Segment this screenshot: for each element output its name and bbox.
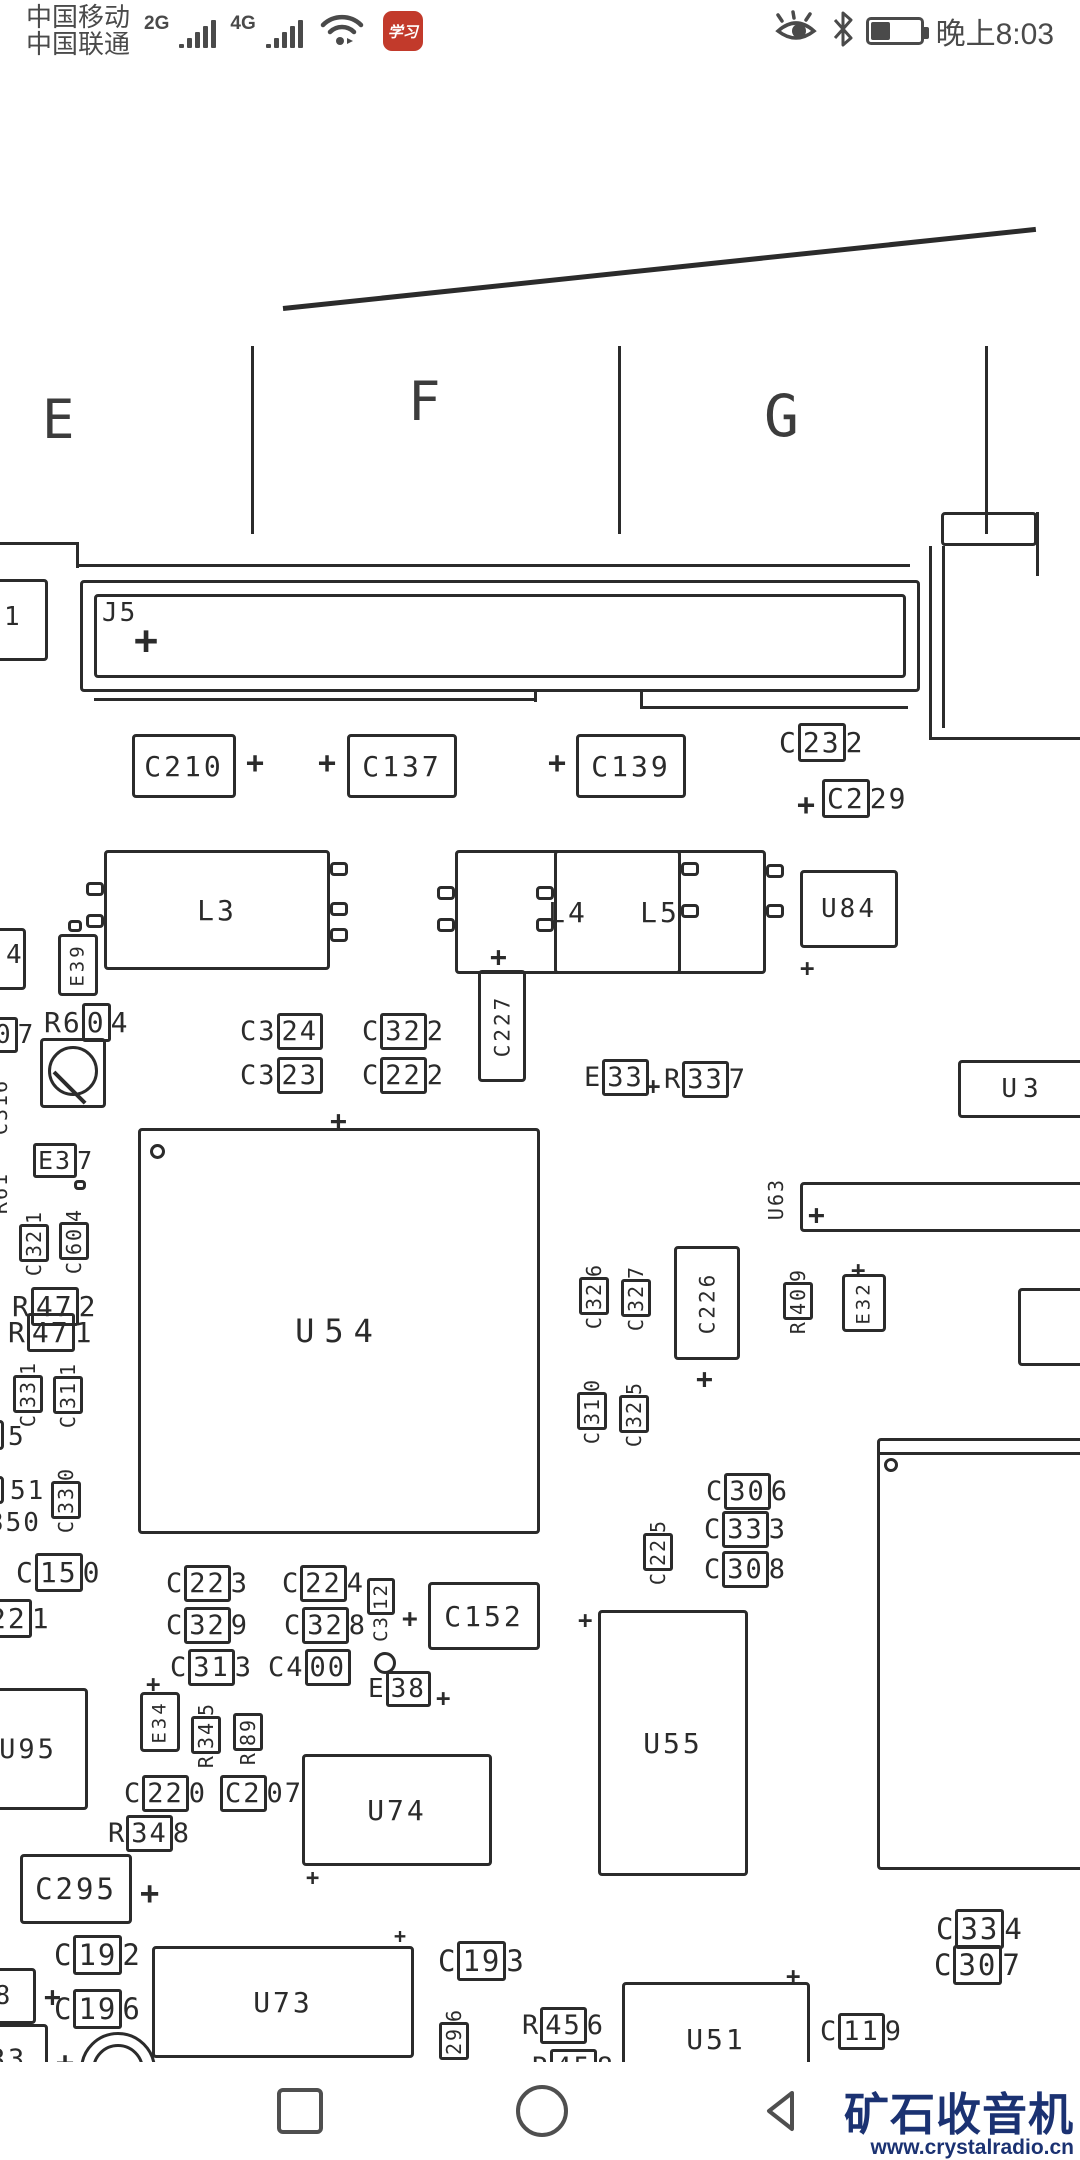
network-type-2: 4G: [230, 13, 255, 35]
inductor-l5: L5: [554, 850, 766, 974]
recent-apps-button[interactable]: [240, 2062, 360, 2160]
plus: +: [436, 1684, 450, 1712]
app-icon-text: 学习: [388, 21, 418, 42]
notification-app-icon: 学习: [383, 11, 423, 51]
cap-c227: C227: [478, 970, 526, 1082]
line: [929, 546, 932, 740]
cap-c232: C232: [779, 728, 864, 757]
label-j5: J5: [102, 600, 137, 627]
grid-divider-1: [251, 346, 254, 534]
cap-c307: C307: [934, 1950, 1022, 1980]
battery-icon: [866, 17, 924, 45]
comp-4: 4: [6, 942, 24, 969]
comp-c330: C330: [56, 1450, 77, 1550]
back-triangle-icon: [756, 2085, 808, 2137]
ic-right-clipped: [877, 1438, 1080, 1870]
grid-divider-3: [985, 346, 988, 534]
rect: [766, 904, 784, 918]
navigation-bar: 矿石收音机 www.crystalradio.cn: [0, 2062, 1080, 2160]
cap-c152: C152: [428, 1582, 540, 1650]
comp-83: 83: [0, 2024, 48, 2062]
comp-1: 1: [4, 604, 22, 631]
connector-u63: [800, 1182, 1080, 1232]
rect: [536, 918, 554, 932]
status-time: 晚上8:03: [936, 9, 1054, 53]
plus: +: [696, 1362, 713, 1395]
rect: [330, 862, 348, 876]
comp-c316: C316: [0, 1062, 11, 1152]
cap-c324: C324: [240, 1018, 323, 1046]
plus: +: [786, 1962, 800, 1990]
rect: [86, 914, 104, 928]
network-type-1: 2G: [144, 13, 169, 35]
comp-07: 07: [0, 1022, 35, 1049]
cap-c137: C137: [347, 734, 457, 798]
eye-comfort-icon: [772, 9, 820, 54]
cap-c295: C295: [20, 1854, 132, 1924]
plus: +: [306, 1866, 319, 1891]
cap-c322: C322: [362, 1018, 445, 1046]
rect: [74, 1180, 86, 1190]
rect: [437, 886, 455, 900]
cap-c400: C400: [268, 1654, 351, 1682]
signal-strength-icon-2: [266, 18, 303, 48]
comp-r471: R471: [8, 1318, 93, 1347]
comp-c326: C326: [584, 1252, 605, 1340]
circle: [884, 1458, 898, 1472]
cap-c210: C210: [132, 734, 236, 798]
rect: [536, 886, 554, 900]
cap-c150: C150: [16, 1558, 101, 1587]
watermark-title: 矿石收音机: [844, 2092, 1074, 2137]
carrier-bottom: 中国联通: [26, 31, 130, 58]
rect: [330, 928, 348, 942]
comp-350: 350: [0, 1510, 41, 1537]
plus: +: [800, 954, 814, 982]
plus: +: [548, 746, 566, 781]
rect: [437, 918, 455, 932]
cap-c308: C308: [704, 1556, 787, 1584]
pcb-diagram-image[interactable]: EFG1J5+C210++C137+C139C232+C229L3L4L5U84…: [0, 62, 1080, 2062]
comp-c327: C327: [626, 1254, 647, 1342]
plus: +: [808, 1198, 825, 1231]
cap-c333: C333: [704, 1516, 787, 1544]
res-r337: R337: [664, 1066, 747, 1094]
cap-c207: C207: [220, 1780, 303, 1808]
ic-u3x-clipped: U3: [958, 1060, 1080, 1118]
ic-u84: U84: [800, 870, 898, 948]
comp-8: 8: [0, 1968, 36, 2024]
grid-letter-g: G: [764, 386, 799, 447]
cap-c226: C226: [674, 1246, 740, 1360]
inductor-l3: L3: [104, 850, 330, 970]
comp-c312: C312: [372, 1568, 392, 1652]
comp-e32: E32: [842, 1274, 886, 1332]
rect: [0, 1476, 4, 1504]
rect: [86, 882, 104, 896]
rect: [68, 920, 82, 932]
line: [640, 706, 908, 709]
comp-c225: C225: [648, 1508, 669, 1596]
comp-e33: E33: [584, 1064, 649, 1092]
cap-c193: C193: [438, 1946, 526, 1976]
res-r458: R458: [532, 2054, 615, 2062]
plus: +: [140, 1874, 159, 1912]
cap-c119: C119: [820, 2018, 903, 2046]
board-diagonal-line: [283, 227, 1036, 311]
ic-u55: U55: [598, 1610, 748, 1876]
ic-u51: U51: [622, 1982, 810, 2062]
plus: +: [578, 1606, 592, 1634]
watermark: 矿石收音机 www.crystalradio.cn: [844, 2092, 1074, 2158]
recents-square-icon: [277, 2088, 323, 2134]
comp-c311: C311: [58, 1352, 79, 1438]
pcb-diagram-canvas: EFG1J5+C210++C137+C139C232+C229L3L4L5U84…: [0, 62, 1080, 2062]
comp-e38: E38: [368, 1676, 431, 1703]
bluetooth-icon: [832, 9, 854, 54]
plus: +: [797, 788, 815, 823]
comp-c296: C296: [444, 1998, 465, 2062]
rect: [1018, 1288, 1080, 1366]
comp-221: 221: [0, 1604, 51, 1633]
watermark-url: www.crystalradio.cn: [844, 2137, 1074, 2158]
plus: +: [490, 940, 507, 973]
grid-letter-e: E: [42, 392, 75, 449]
back-button[interactable]: [722, 2062, 842, 2160]
cap-c229: C229: [822, 784, 907, 813]
res-r348: R348: [108, 1820, 191, 1848]
grid-divider-2: [618, 346, 621, 534]
trimpot-r604-label: R604: [44, 1008, 129, 1037]
comp-c321: C321: [24, 1194, 45, 1292]
rect: [766, 864, 784, 878]
cap-c328: C328: [284, 1612, 367, 1640]
line: [929, 737, 1080, 740]
signal-strength-icon-1: [179, 18, 216, 48]
wifi-icon: [319, 10, 365, 53]
cap-c329: C329: [166, 1612, 249, 1640]
line: [0, 542, 78, 545]
plus: +: [402, 1604, 418, 1634]
plus: +: [246, 746, 264, 781]
home-button[interactable]: [482, 2062, 602, 2160]
plus: +: [394, 1924, 406, 1948]
cap-c196: C196: [54, 1994, 142, 2024]
comp-c310: C310: [582, 1366, 603, 1456]
cap-c306: C306: [706, 1478, 789, 1506]
comp-e39: E39: [58, 934, 98, 996]
rect: [941, 512, 1037, 546]
rect: [330, 902, 348, 916]
cap-c334: C334: [936, 1914, 1024, 1944]
ic-u74: U74: [302, 1754, 492, 1866]
comp-r61: R61: [0, 1158, 11, 1228]
comp-e37: E37: [33, 1148, 94, 1174]
plus: +: [318, 746, 336, 781]
comp-5: 5: [8, 1424, 26, 1451]
circle: [150, 1144, 165, 1159]
phone-screen: 中国移动 中国联通 2G 4G 学习: [0, 0, 1080, 2160]
connector-j5-inner: [94, 594, 906, 678]
line: [1036, 512, 1039, 576]
plus: +: [646, 1072, 660, 1100]
res-r456: R456: [522, 2012, 605, 2040]
comp-c325: C325: [624, 1368, 645, 1460]
plus: +: [56, 2046, 74, 2062]
cap-c192: C192: [54, 1940, 142, 1970]
comp-c604: C604: [64, 1192, 85, 1290]
line: [942, 546, 945, 728]
grid-letter-f: F: [408, 374, 441, 431]
plus: +: [134, 618, 158, 664]
cap-c139: C139: [576, 734, 686, 798]
line: [76, 564, 910, 567]
line: [877, 1452, 1080, 1455]
plus: +: [330, 1104, 347, 1137]
rect: [0, 1420, 4, 1450]
cap-c323: C323: [240, 1062, 323, 1090]
cap-c224: C224: [282, 1570, 365, 1598]
comp-r345: R345: [196, 1688, 217, 1782]
carrier-top: 中国移动: [26, 4, 130, 31]
cap-c222: C222: [362, 1062, 445, 1090]
cap-c220: C220: [124, 1780, 207, 1808]
line: [94, 698, 534, 701]
line: [534, 692, 537, 702]
comp-51: 51: [10, 1478, 45, 1505]
label-u63: U63: [766, 1164, 787, 1234]
status-bar: 中国移动 中国联通 2G 4G 学习: [0, 0, 1080, 62]
carrier-names: 中国移动 中国联通: [26, 4, 130, 58]
cap-c313: C313: [170, 1654, 253, 1682]
comp-r89: R89: [238, 1692, 259, 1786]
cap-c223: C223: [166, 1570, 249, 1598]
home-circle-icon: [516, 2085, 568, 2137]
comp-r409: R409: [788, 1256, 809, 1346]
comp-e34: E34: [140, 1692, 180, 1752]
ic-u54: U54: [138, 1128, 540, 1534]
ic-u95: U95: [0, 1688, 88, 1810]
ic-u73: U73: [152, 1946, 414, 2058]
